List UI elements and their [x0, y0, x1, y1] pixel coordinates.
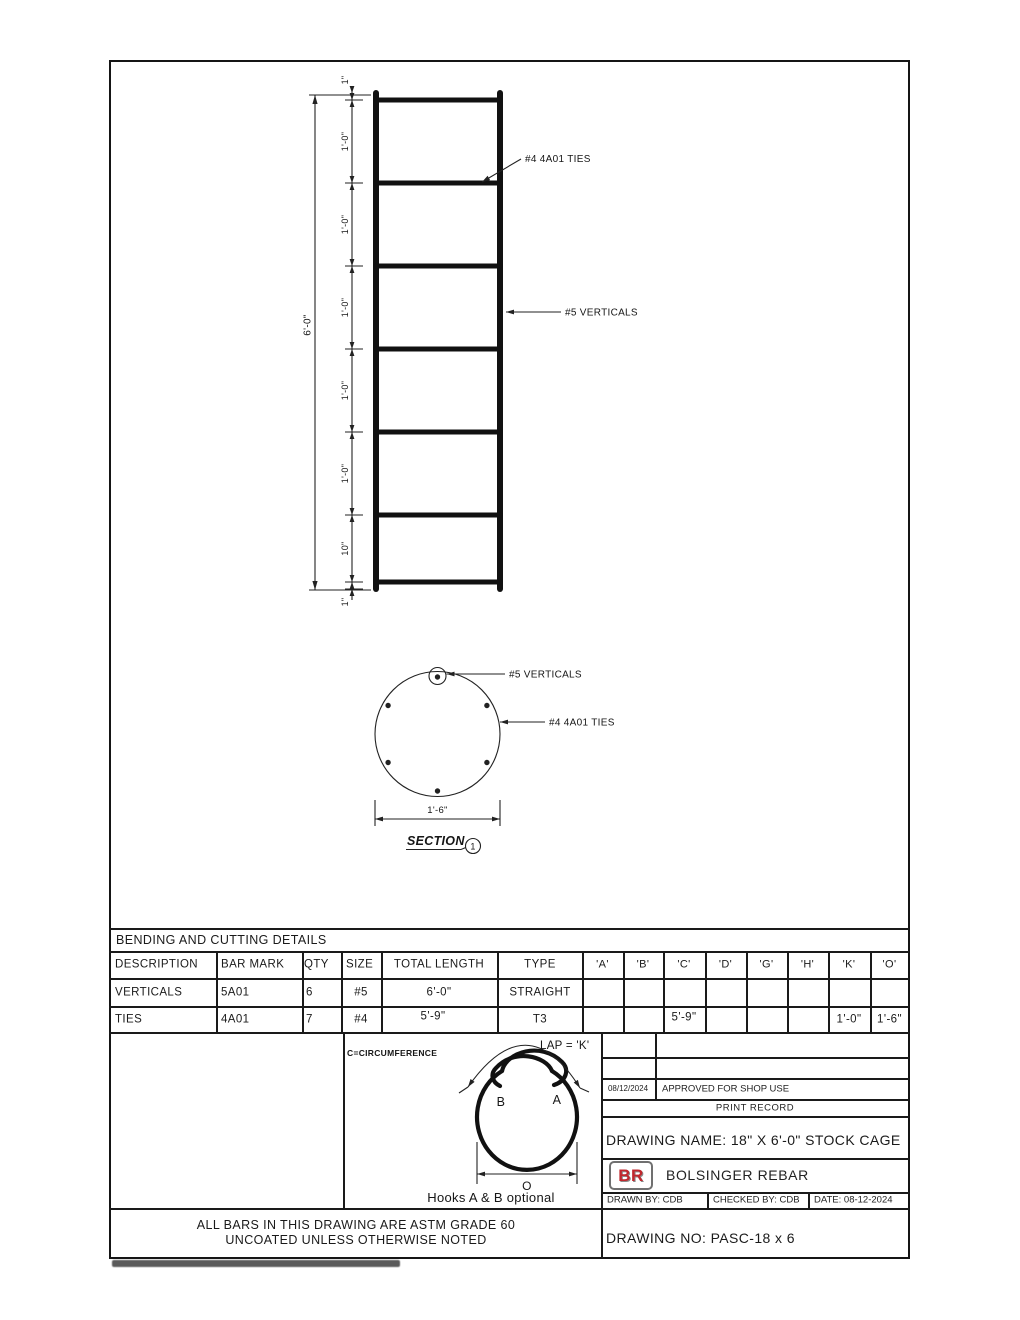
table-cell: 1'-6"	[877, 1014, 902, 1026]
col-header-bar-mark: BAR MARK	[221, 959, 284, 971]
col-header-c: 'C'	[677, 960, 690, 971]
title-block-date: DATE: 08-12-2024	[814, 1195, 893, 1205]
print-record-note: APPROVED FOR SHOP USE	[662, 1084, 789, 1094]
col-header-d: 'D'	[719, 960, 732, 971]
dim-label: 1'-0"	[340, 298, 350, 317]
col-header-b: 'B'	[637, 960, 650, 971]
hook-a-label: A	[553, 1093, 562, 1107]
col-header-total-length: TOTAL LENGTH	[394, 959, 484, 971]
drawing-name: DRAWING NAME: 18" X 6'-0" STOCK CAGE	[606, 1133, 901, 1147]
table-line	[870, 951, 872, 1032]
table-line	[623, 951, 625, 1032]
col-header-size: SIZE	[346, 959, 373, 971]
section-verticals-callout: #5 VERTICALS	[509, 670, 582, 681]
table-line	[109, 1208, 909, 1210]
table-cell: 5'-9"	[421, 1011, 446, 1023]
col-header-qty: QTY	[304, 959, 329, 971]
table-line	[109, 978, 909, 980]
title-block-line	[601, 1158, 909, 1160]
table-line	[601, 1032, 603, 1258]
company-logo-text: BR	[618, 1166, 644, 1186]
section-ties-callout: #4 4A01 TIES	[549, 718, 615, 729]
table-cell: TIES	[115, 1014, 142, 1026]
lap-label: LAP = 'K'	[540, 1040, 589, 1052]
title-block-line	[601, 1057, 909, 1059]
ties-callout: #4 4A01 TIES	[525, 154, 591, 165]
table-line	[109, 1006, 909, 1008]
dim-label: 1'-0"	[340, 381, 350, 400]
table-line	[109, 928, 909, 930]
table-cell: 4A01	[221, 1014, 249, 1026]
checked-by: CHECKED BY: CDB	[713, 1195, 800, 1205]
dim-label: 1'-0"	[340, 215, 350, 234]
table-cell: #5	[354, 987, 368, 999]
table-line	[787, 951, 789, 1032]
verticals-callout: #5 VERTICALS	[565, 308, 638, 319]
drawing-sheet: 6'-0" 1" 1'-0" 1'-0" 1'-0" 1	[0, 0, 1020, 1320]
drawn-by: DRAWN BY: CDB	[607, 1195, 683, 1205]
table-line	[582, 951, 584, 1032]
bending-table-title: BENDING AND CUTTING DETAILS	[116, 933, 327, 946]
section-bubble-number: 1	[470, 842, 475, 852]
section-width-dim: 1'-6"	[427, 805, 447, 816]
col-header-description: DESCRIPTION	[115, 959, 198, 971]
col-header-k: 'K'	[843, 960, 856, 971]
overall-dimension: 6'-0"	[303, 95, 372, 590]
table-line	[216, 951, 218, 1032]
table-line	[109, 951, 909, 953]
dim-label: 1"	[340, 598, 350, 607]
company-logo: BR	[609, 1161, 653, 1190]
cage-elevation-and-section: 6'-0" 1" 1'-0" 1'-0" 1'-0" 1	[109, 60, 909, 928]
table-cell: 7	[306, 1014, 313, 1026]
title-block-line	[601, 1099, 909, 1101]
tie-hook-detail: LAP = 'K' C=CIRCUMFERENCE B A O Hooks A …	[343, 1032, 601, 1208]
tie-ring	[477, 1071, 577, 1170]
print-record-label: PRINT RECORD	[716, 1103, 794, 1113]
table-cell: 5A01	[221, 987, 249, 999]
section-title: SECTION	[407, 834, 465, 848]
table-cell: 6	[306, 987, 313, 999]
title-block-line	[655, 1032, 657, 1099]
general-note-line2: UNCOATED UNLESS OTHERWISE NOTED	[225, 1233, 486, 1246]
table-line	[663, 951, 665, 1032]
table-cell: 1'-0"	[837, 1014, 862, 1026]
col-header-o: 'O'	[883, 960, 897, 971]
dim-label: 10"	[340, 541, 350, 555]
company-name: BOLSINGER REBAR	[666, 1168, 809, 1182]
table-line	[497, 951, 499, 1032]
table-line	[828, 951, 830, 1032]
general-note-line1: ALL BARS IN THIS DRAWING ARE ASTM GRADE …	[197, 1218, 516, 1231]
segment-dimensions: 1" 1'-0" 1'-0" 1'-0" 1'-0" 1'-0" 10" 1"	[340, 76, 363, 607]
print-record-date: 08/12/2024	[608, 1085, 648, 1093]
drawing-number: DRAWING NO: PASC-18 x 6	[606, 1231, 795, 1245]
table-line	[341, 951, 343, 1032]
table-cell: VERTICALS	[115, 987, 182, 999]
circumference-note: C=CIRCUMFERENCE	[347, 1048, 437, 1058]
table-cell: 5'-9"	[672, 1012, 697, 1024]
elevation-leaders: #4 4A01 TIES #5 VERTICALS	[482, 154, 638, 319]
col-header-h: 'H'	[801, 960, 814, 971]
table-cell: STRAIGHT	[509, 987, 570, 999]
col-header-g: 'G'	[760, 960, 774, 971]
title-block-line	[601, 1078, 909, 1080]
table-cell: 6'-0"	[427, 987, 452, 999]
overall-dim-label: 6'-0"	[303, 314, 314, 336]
title-block-line	[601, 1116, 909, 1118]
dim-label: 1'-0"	[340, 464, 350, 483]
dim-label: 1"	[340, 76, 350, 85]
table-line	[705, 951, 707, 1032]
col-header-a: 'A'	[596, 960, 609, 971]
section-view: #5 VERTICALS #4 4A01 TIES 1'-6" SECTION …	[375, 668, 615, 854]
scan-artifact	[112, 1260, 400, 1267]
table-line	[381, 951, 383, 1032]
hook-caption: Hooks A & B optional	[427, 1190, 554, 1205]
title-block-line	[808, 1192, 810, 1208]
table-cell: #4	[354, 1014, 368, 1026]
dim-label: 1'-0"	[340, 132, 350, 151]
table-line	[746, 951, 748, 1032]
cage-elevation	[376, 93, 500, 589]
table-cell: T3	[533, 1014, 547, 1026]
col-header-type: TYPE	[524, 959, 556, 971]
title-block-line	[707, 1192, 709, 1208]
hook-b-label: B	[497, 1095, 506, 1109]
